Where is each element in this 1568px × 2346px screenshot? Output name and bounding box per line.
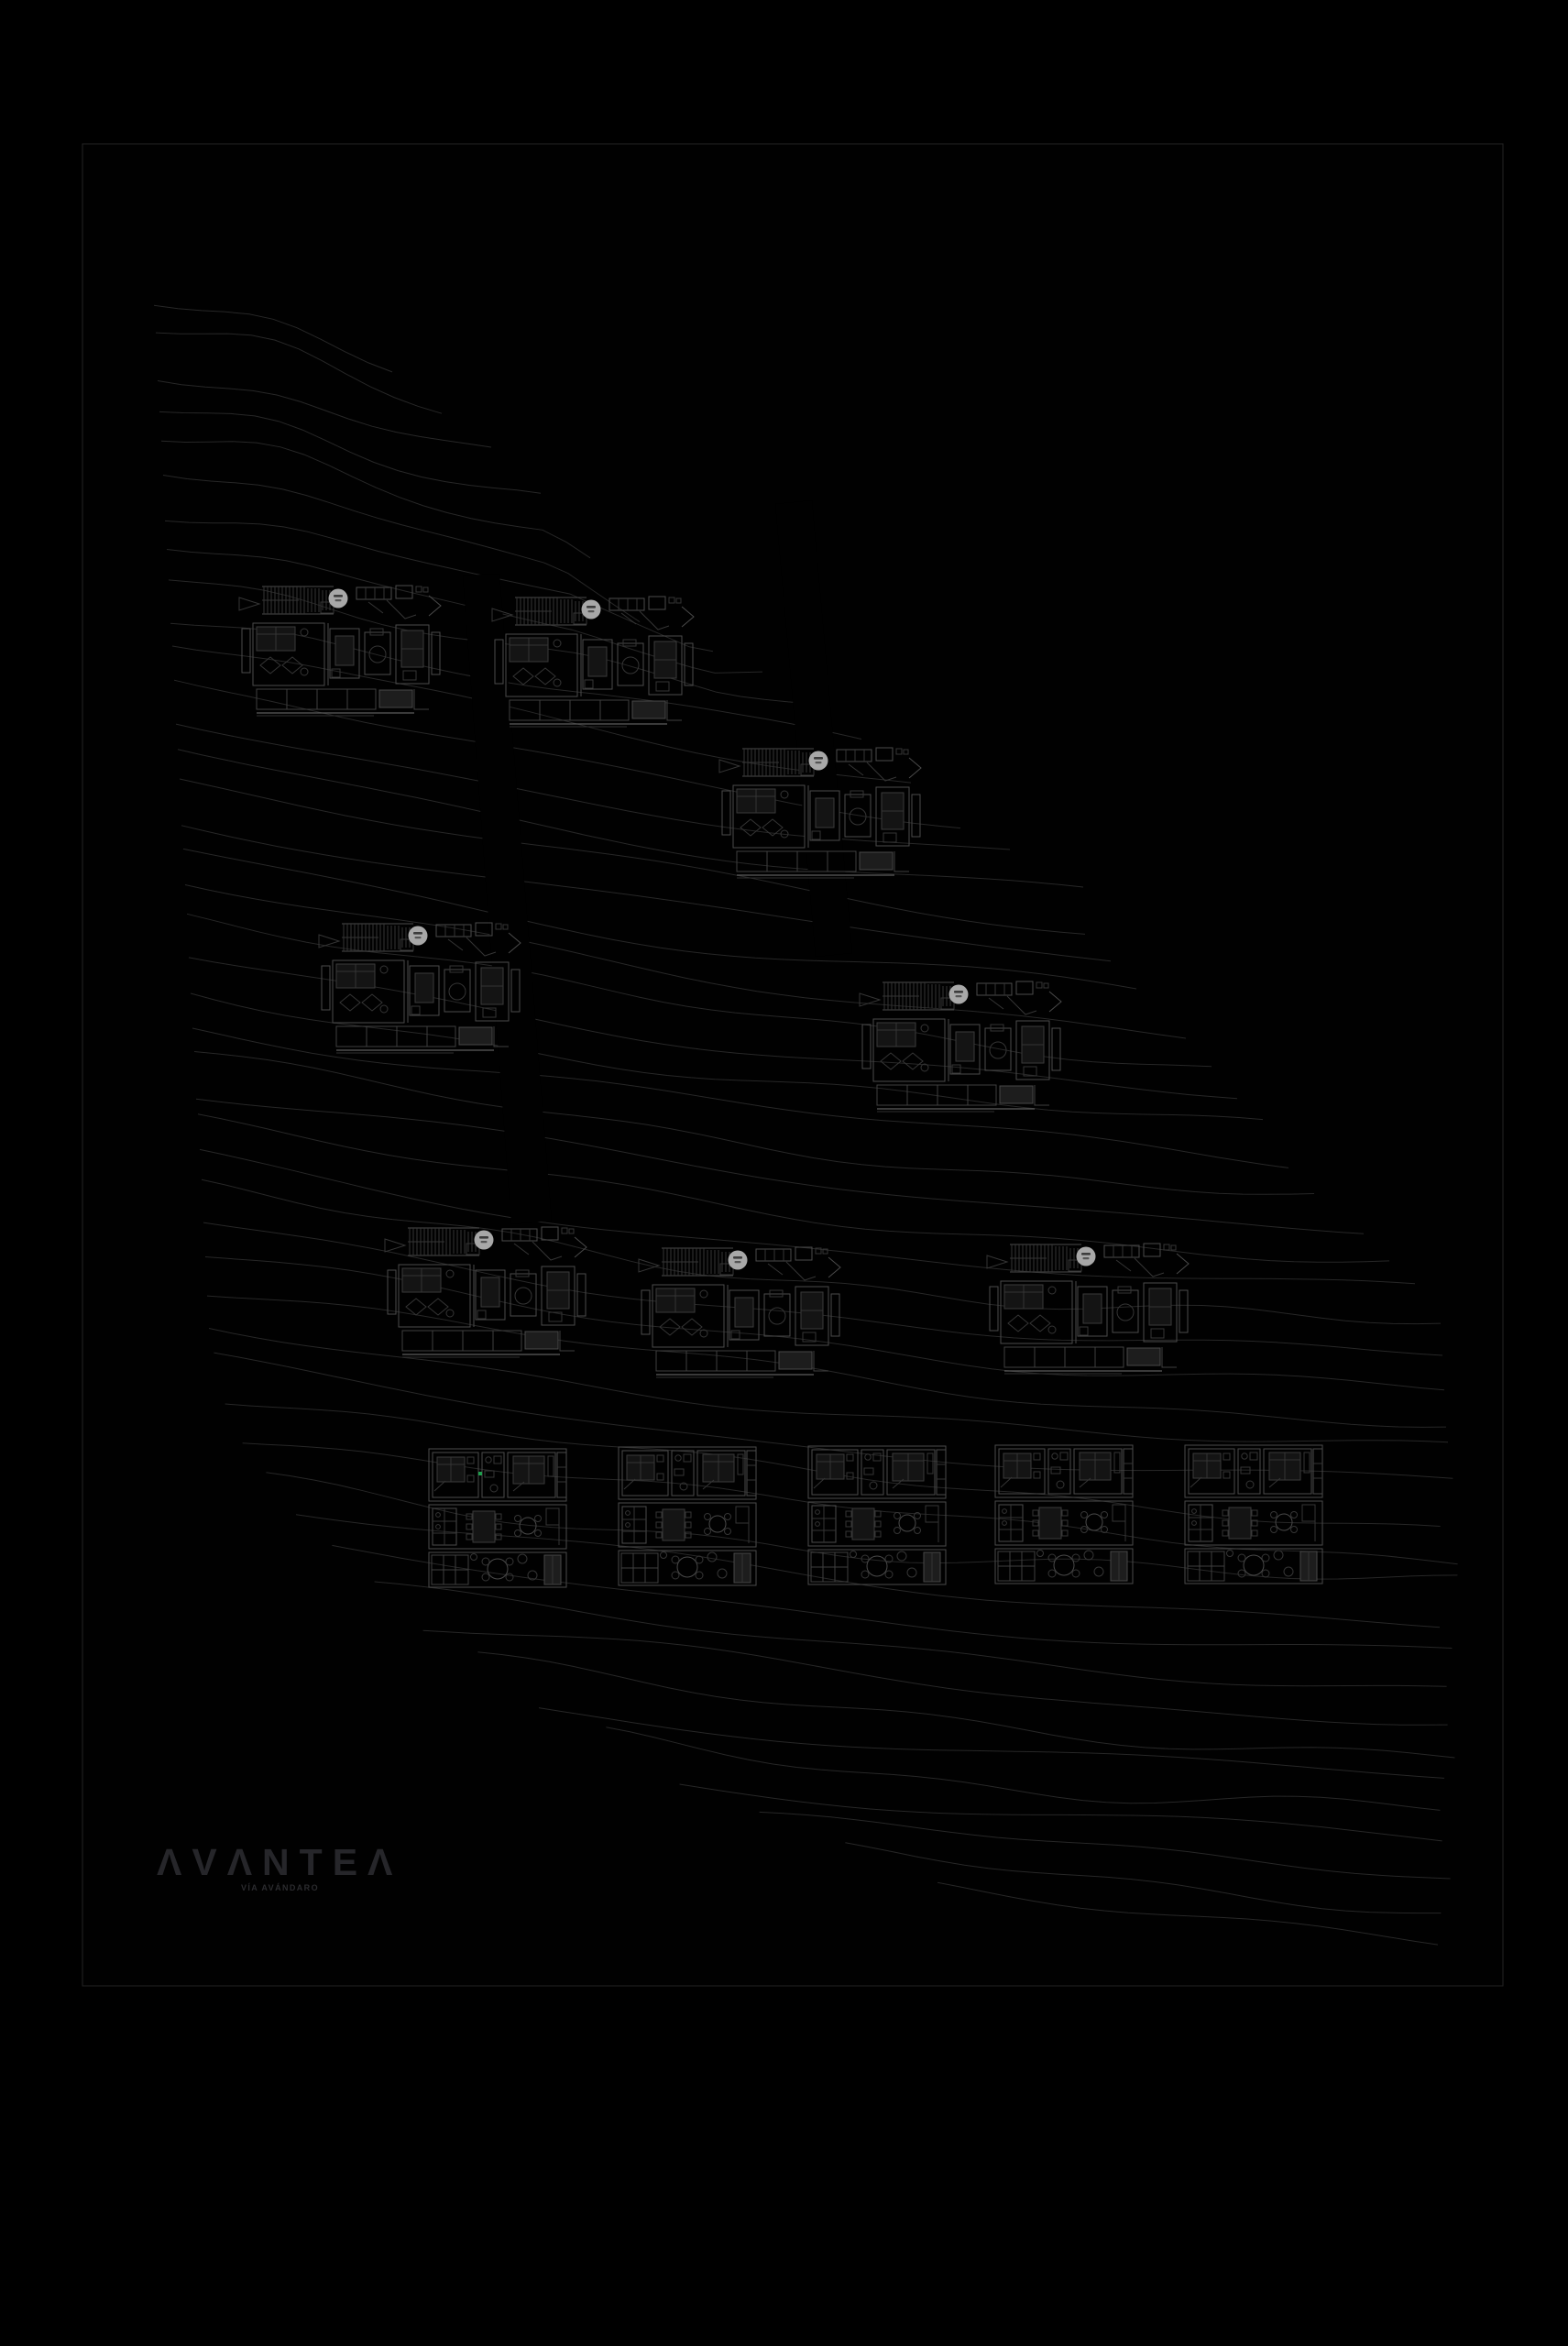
brand-tagline: VÍA AVÁNDARO (241, 1884, 319, 1892)
unit-plan-1-green-marker (478, 1472, 482, 1475)
villa-plan-3-lot-badge (809, 751, 828, 771)
site-plan-canvas (0, 0, 1568, 2346)
villa-plan-8-lot-badge (1077, 1247, 1096, 1266)
villa-plan-6-lot-badge (475, 1231, 494, 1250)
villa-plan-5-lot-badge (949, 985, 969, 1004)
villa-plan-7-lot-badge (729, 1251, 748, 1270)
villa-plan-4-lot-badge (409, 926, 428, 946)
brand-logo: ΛVΛNTEΛ (157, 1844, 402, 1881)
villa-plan-1-lot-badge (329, 589, 348, 608)
villa-plan-2-lot-badge (582, 600, 601, 619)
poster-background: ΛVΛNTEΛ VÍA AVÁNDARO (0, 0, 1568, 2346)
